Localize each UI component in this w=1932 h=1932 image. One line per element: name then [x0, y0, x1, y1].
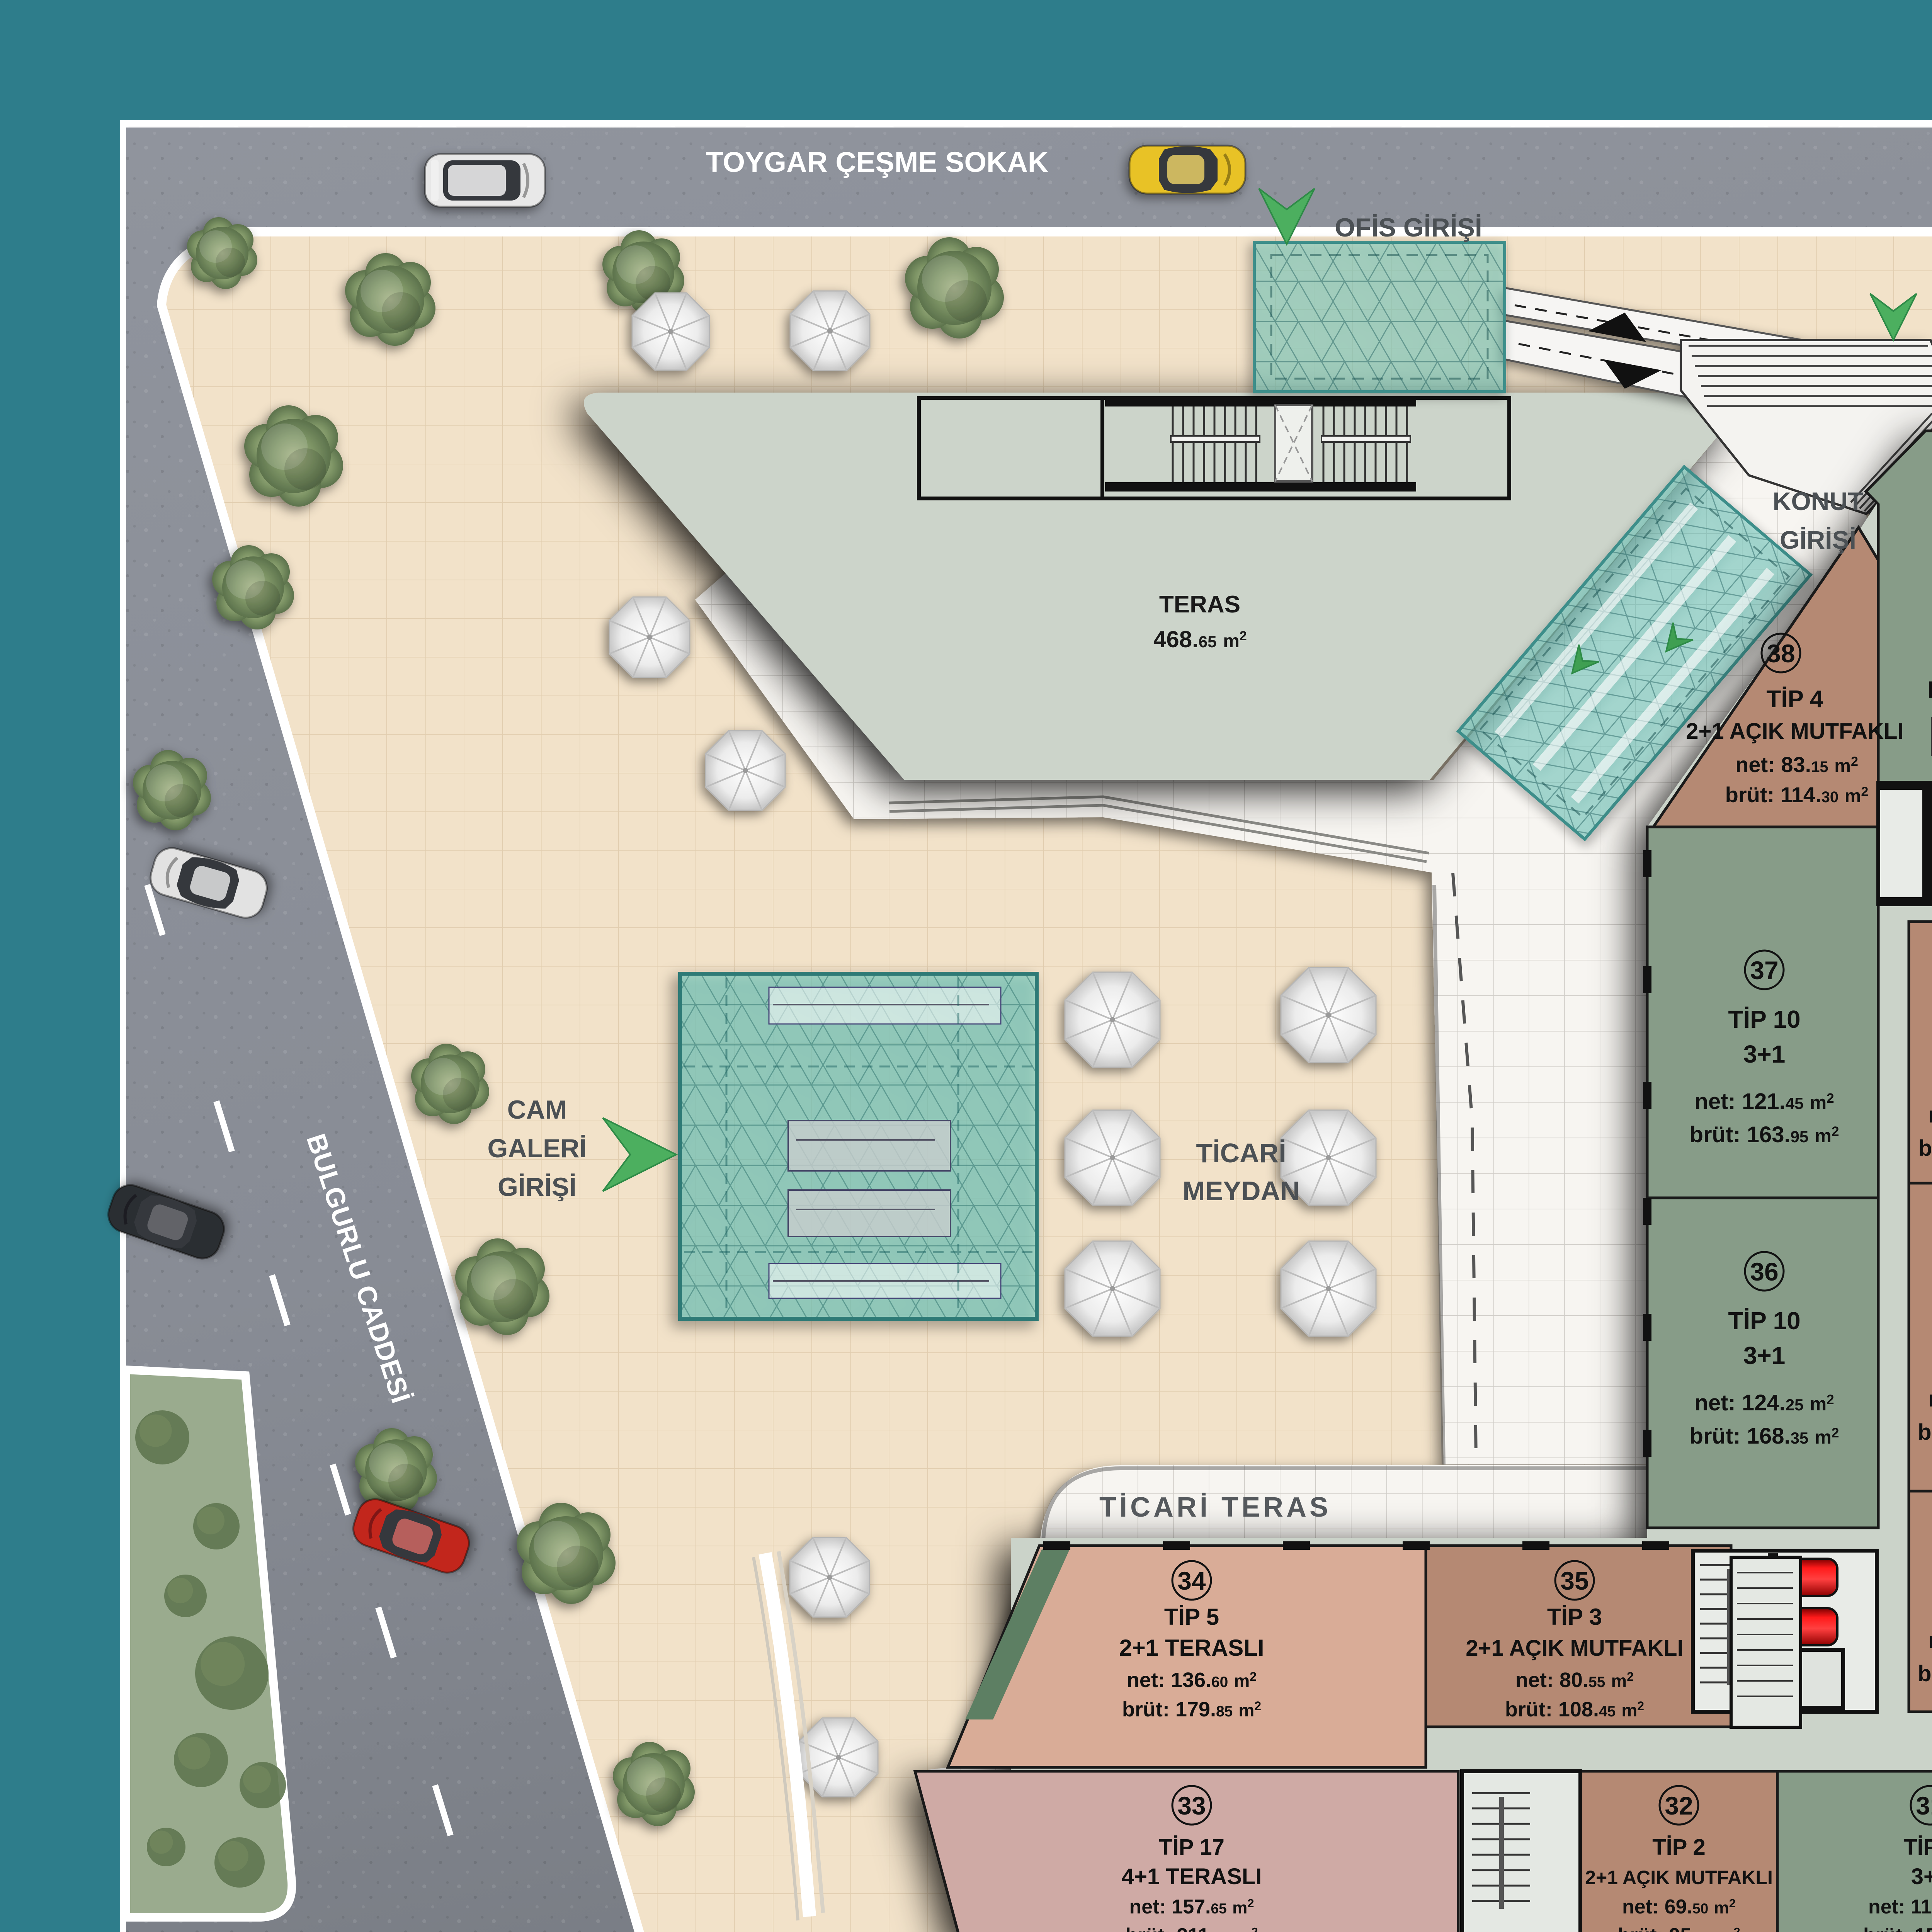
- svg-text:32: 32: [1665, 1791, 1693, 1820]
- svg-text:31: 31: [1916, 1791, 1932, 1820]
- svg-text:brüt: 163.95 m2: brüt: 163.95 m2: [1690, 1122, 1839, 1147]
- svg-text:net: 124.25 m2: net: 124.25 m2: [1694, 1390, 1834, 1415]
- svg-text:TİP 10: TİP 10: [1728, 1005, 1800, 1033]
- svg-text:net: 69.50 m2: net: 69.50 m2: [1622, 1896, 1736, 1918]
- svg-text:37: 37: [1750, 956, 1778, 985]
- svg-text:GALERİ: GALERİ: [488, 1134, 587, 1163]
- svg-text:brüt: 111.10 m2: brüt: 111.10 m2: [1918, 1136, 1932, 1161]
- svg-text:TİP 17: TİP 17: [1159, 1835, 1225, 1860]
- svg-text:KONUT: KONUT: [1773, 487, 1864, 515]
- svg-text:38: 38: [1767, 639, 1795, 668]
- svg-text:net: 121.45 m2: net: 121.45 m2: [1694, 1089, 1834, 1114]
- svg-text:TİP 5: TİP 5: [1164, 1604, 1219, 1630]
- svg-text:MEYDAN: MEYDAN: [1182, 1176, 1299, 1206]
- svg-text:3+1: 3+1: [1743, 1342, 1786, 1369]
- svg-text:brüt: 108.45 m2: brüt: 108.45 m2: [1505, 1698, 1644, 1721]
- svg-text:2+1 AÇIK MUTFAKLI: 2+1 AÇIK MUTFAKLI: [1585, 1867, 1773, 1888]
- svg-text:3+1: 3+1: [1743, 1040, 1786, 1068]
- svg-text:net: 157.65 m2: net: 157.65 m2: [1129, 1896, 1254, 1918]
- svg-text:2+1 TERASLI: 2+1 TERASLI: [1119, 1635, 1264, 1661]
- svg-text:OFİS GİRİŞİ: OFİS GİRİŞİ: [1335, 213, 1482, 242]
- svg-text:net: 136.60 m2: net: 136.60 m2: [1127, 1668, 1257, 1692]
- svg-text:4+1 TERASLI: 4+1 TERASLI: [1122, 1864, 1262, 1889]
- svg-text:brüt: 179.85 m2: brüt: 179.85 m2: [1122, 1698, 1261, 1721]
- svg-text:TİCARİ TERAS: TİCARİ TERAS: [1099, 1492, 1331, 1523]
- svg-text:brüt: 114.30 m2: brüt: 114.30 m2: [1725, 782, 1869, 807]
- svg-text:brüt: 151.50 m2: brüt: 151.50 m2: [1928, 678, 1932, 703]
- svg-text:GİRİŞİ: GİRİŞİ: [1780, 526, 1856, 554]
- svg-text:TOYGAR ÇEŞME SOKAK: TOYGAR ÇEŞME SOKAK: [706, 146, 1049, 178]
- svg-text:34: 34: [1177, 1566, 1206, 1595]
- svg-text:TİP 2: TİP 2: [1652, 1835, 1706, 1860]
- svg-text:2+1 AÇIK MUTFAKLI: 2+1 AÇIK MUTFAKLI: [1466, 1636, 1683, 1661]
- svg-text:TİP 10: TİP 10: [1728, 1307, 1800, 1335]
- svg-text:brüt: 157.00 m2: brüt: 157.00 m2: [1863, 1924, 1932, 1932]
- svg-text:CAM: CAM: [507, 1095, 567, 1124]
- svg-text:brüt: 113.45 m2: brüt: 113.45 m2: [1918, 1420, 1932, 1445]
- svg-text:brüt: 168.35 m2: brüt: 168.35 m2: [1690, 1423, 1839, 1449]
- svg-text:net: 79.95 m2: net: 79.95 m2: [1929, 1102, 1932, 1128]
- svg-text:brüt: 113.55 m2: brüt: 113.55 m2: [1918, 1661, 1932, 1686]
- svg-text:net: 83.15 m2: net: 83.15 m2: [1735, 752, 1858, 777]
- svg-text:TİCARİ: TİCARİ: [1196, 1138, 1286, 1168]
- svg-text:TİP 4: TİP 4: [1766, 686, 1823, 713]
- svg-text:net: 116.70 m2: net: 116.70 m2: [1868, 1896, 1932, 1918]
- svg-text:3+1: 3+1: [1911, 1864, 1932, 1889]
- svg-text:TİP 3: TİP 3: [1547, 1604, 1602, 1630]
- svg-text:GİRİŞİ: GİRİŞİ: [498, 1172, 577, 1202]
- svg-text:33: 33: [1177, 1791, 1206, 1820]
- svg-text:35: 35: [1560, 1566, 1588, 1595]
- svg-text:TİP 9: TİP 9: [1903, 1835, 1932, 1860]
- svg-text:net: 82.85 m2: net: 82.85 m2: [1929, 1628, 1932, 1653]
- svg-text:net: 81.70 m2: net: 81.70 m2: [1929, 1386, 1932, 1412]
- svg-text:36: 36: [1750, 1257, 1778, 1286]
- svg-text:net: 80.55 m2: net: 80.55 m2: [1515, 1668, 1634, 1692]
- svg-text:2+1 AÇIK MUTFAKLI: 2+1 AÇIK MUTFAKLI: [1686, 719, 1903, 744]
- svg-text:TERAS: TERAS: [1159, 591, 1240, 618]
